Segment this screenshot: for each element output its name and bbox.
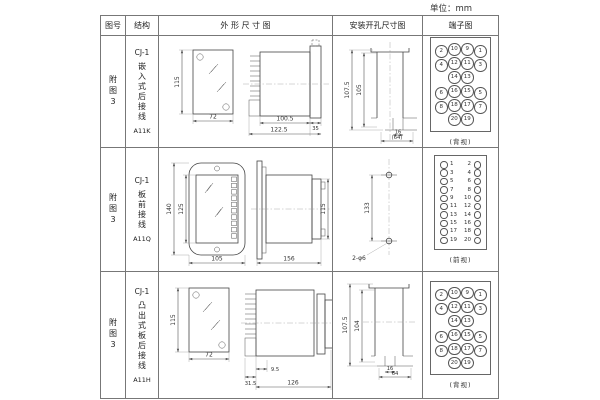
terminal-pin: 1 [440,161,457,168]
terminal-pin: 1 [474,45,487,58]
terminal-pin: 12 [448,57,461,70]
dim-front-height-inner-row2: 125 [178,203,185,215]
structure-model-row3: CJ-1 [135,287,150,296]
terminal-pin: 11 [440,203,457,210]
terminal-pin: 3 [440,170,457,177]
header-install: 安装开孔尺寸图 [350,20,406,31]
dim-base-depth-row3: 31.5 [244,381,256,387]
fins-row1 [250,56,260,96]
dim-front-width-row2: 105 [211,255,223,262]
dim-front-width-row1: 72 [209,113,217,120]
terminal-pin: 2 [464,161,481,168]
terminal-pin: 13 [461,71,474,84]
dim-stud-depth-row3: 9.5 [270,367,278,373]
terminal-pin: 20 [448,357,461,370]
terminal-pin: 8 [435,101,448,114]
structure-cell-row3: CJ-1 凸出式板后接线 A11H [126,272,159,398]
fins-row3 [245,294,256,334]
terminal-pin: 12 [464,203,481,210]
structure-model-row2: CJ-1 [135,176,150,185]
terminal-grid-row3: 2109141211314136161558181772019 [430,281,491,376]
terminal-pin: 4 [435,303,448,316]
terminal-view-label-row1: (背视) [449,136,471,146]
install-drawing-row3: 107.5 104 16 64 [333,272,423,398]
dim-front-height-row3: 115 [170,314,177,326]
terminal-pin: 6 [464,178,481,185]
header-outline: 外 形 尺 寸 图 [220,20,270,31]
figure-no-row3: 附图3 [108,318,119,352]
dim-v-inner-row1: 105 [356,84,363,96]
terminal-pin: 5 [474,87,487,100]
unit-label: 单位：mm [430,2,472,14]
terminal-pin: 15 [461,85,474,98]
terminal-pin: 15 [461,329,474,342]
terminal-pin: 5 [440,178,457,185]
terminal-pin: 11 [461,301,474,314]
terminal-pin: 1 [474,289,487,302]
dim-h-outer-row3: 64 [391,371,398,377]
terminal-pin: 6 [435,87,448,100]
terminal-cell-row3: 2109141211314136161558181772019 (背视) [423,272,498,398]
terminal-pin: 16 [464,220,481,227]
dim-front-height-outer-row2: 140 [166,203,173,215]
page-root: 单位：mm 图号 结构 外 形 尺 寸 图 安装开孔尺寸图 端子图 附图3 CJ… [0,0,600,400]
structure-cell-row2: CJ-1 板前接线 A11Q [126,148,159,272]
terminal-pin: 5 [474,331,487,344]
dim-flange-row1: 35 [312,126,319,132]
terminal-pin: 2 [435,289,448,302]
terminal-pin: 17 [440,228,457,235]
terminal-pin: 7 [474,101,487,114]
terminal-pin: 14 [464,212,481,219]
terminal-pin: 17 [461,99,474,112]
terminal-pin: 7 [440,187,457,194]
terminal-pin: 4 [464,170,481,177]
terminal-pin: 11 [461,57,474,70]
terminal-pin: 8 [464,187,481,194]
terminal-cell-row1: 2109141211314136161558181772019 (背视) [423,36,498,148]
terminal-pin: 18 [464,228,481,235]
terminal-pin: 8 [435,345,448,358]
terminal-pin: 14 [448,315,461,328]
structure-desc-row1: 嵌入式后接线 [137,62,148,122]
terminal-pin: 18 [448,343,461,356]
terminal-pin: 12 [448,301,461,314]
terminal-pin: 3 [474,303,487,316]
terminal-col-right-row2: 2468101214161820 [464,161,481,243]
terminal-pin: 10 [448,43,461,56]
dim-depth-row2: 156 [283,255,295,262]
structure-cell-row1: CJ-1 嵌入式后接线 A11K [126,36,159,148]
outline-cell-row2: 140 125 105 156 115 [159,148,333,272]
terminal-pin: 19 [461,357,474,370]
terminal-cell-row2: 135791113151719 2468101214161820 (前视) [423,148,498,272]
dim-v-outer-row1: 107.5 [344,81,351,98]
terminal-grid-row1: 2109141211314136161558181772019 [430,37,491,132]
figure-no-row2: 附图3 [108,193,119,227]
terminal-pin: 9 [461,287,474,300]
terminal-pin: 20 [464,237,481,244]
terminal-pin: 16 [448,85,461,98]
header-figure-no: 图号 [105,20,121,31]
outline-drawing-row1: 115 72 100.5 35 [159,38,333,146]
structure-code-row3: A11H [133,376,151,384]
figure-no-row1: 附图3 [108,75,119,109]
install-drawing-row2: 133 2-φ6 [333,149,423,271]
install-cell-row2: 133 2-φ6 [333,148,423,272]
dim-total-depth-row1: 122.5 [270,126,287,133]
outline-cell-row3: 115 72 9.5 31.5 [159,272,333,398]
terminal-columns-row2: 135791113151719 2468101214161820 [434,155,487,249]
install-drawing-row1: 107.5 105 16 (64) [333,38,423,146]
dim-side-height-row2: 115 [320,203,327,215]
structure-code-row2: A11Q [133,235,151,243]
dim-holes-row2: 2-φ6 [352,255,366,262]
spec-table: 图号 结构 外 形 尺 寸 图 安装开孔尺寸图 端子图 附图3 CJ-1 嵌入式… [100,15,499,399]
terminal-view-label-row3: (背视) [449,379,471,389]
figure-cell-row1: 附图3 [101,36,126,148]
terminal-pin: 2 [435,45,448,58]
terminal-pin: 9 [440,195,457,202]
header-structure: 结构 [134,20,150,31]
outline-drawing-row3: 115 72 9.5 31.5 [159,272,333,398]
dim-h-outer-row1: (64) [391,135,402,141]
structure-desc-row2: 板前接线 [137,190,148,230]
terminal-pin: 9 [461,43,474,56]
terminal-pin: 4 [435,59,448,72]
terminal-view-label-row2: (前视) [449,254,471,264]
terminal-strip-row2 [231,177,236,238]
dim-v-outer-row3: 107.5 [342,316,349,333]
terminal-pin: 14 [448,71,461,84]
outline-drawing-row2: 140 125 105 156 115 [159,149,333,271]
structure-desc-row3: 凸出式板后接线 [137,301,148,371]
structure-code-row1: A11K [134,127,151,135]
terminal-pin: 17 [461,343,474,356]
terminal-pin: 18 [448,99,461,112]
terminal-pin: 10 [448,287,461,300]
dim-v-inner-row3: 104 [354,320,361,332]
terminal-pin: 10 [464,195,481,202]
terminal-pin: 13 [461,315,474,328]
terminal-pin: 13 [440,212,457,219]
figure-cell-row3: 附图3 [101,272,126,398]
terminal-pin: 20 [448,113,461,126]
dim-hole-spacing-row2: 133 [364,202,371,214]
terminal-pin: 6 [435,331,448,344]
dim-front-height-row1: 115 [174,76,181,88]
terminal-col-left-row2: 135791113151719 [440,161,457,243]
outline-cell-row1: 115 72 100.5 35 [159,36,333,148]
terminal-pin: 3 [474,59,487,72]
dim-front-width-row3: 72 [205,352,213,359]
structure-model-row1: CJ-1 [135,48,150,57]
terminal-pin: 16 [448,329,461,342]
terminal-pin: 19 [461,113,474,126]
figure-cell-row2: 附图3 [101,148,126,272]
dim-body-depth-row1: 100.5 [276,115,293,122]
header-terminal: 端子图 [449,20,473,31]
install-cell-row1: 107.5 105 16 (64) [333,36,423,148]
terminal-pin: 15 [440,220,457,227]
terminal-pin: 7 [474,345,487,358]
dim-total-depth-row3: 126 [287,380,299,387]
terminal-pin: 19 [440,237,457,244]
install-cell-row3: 107.5 104 16 64 [333,272,423,398]
